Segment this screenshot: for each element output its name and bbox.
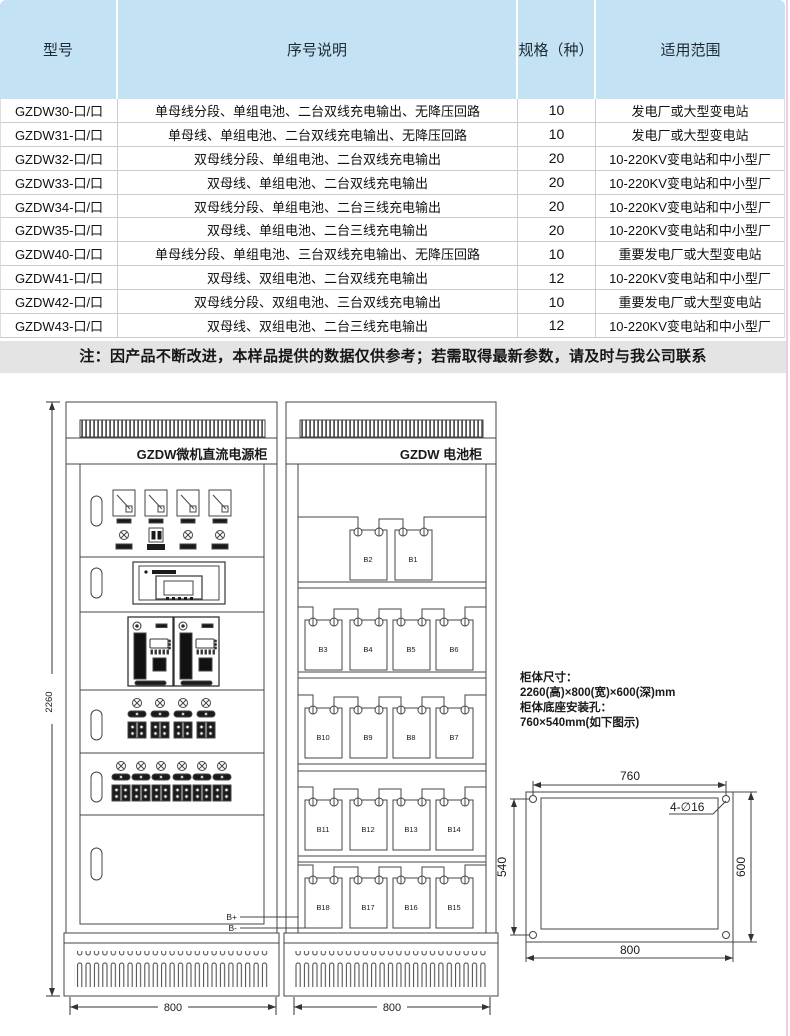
page-edge-line [786, 0, 788, 1036]
mount-holes-label: 4-∅16 [670, 800, 705, 814]
cell-range: 10-220KV变电站和中小型厂 [596, 147, 785, 171]
cell-spec: 12 [518, 314, 596, 338]
battery-cabinet-title: GZDW 电池柜 [400, 447, 482, 462]
bplus-label: B+ [226, 912, 237, 922]
cell-range: 10-220KV变电站和中小型厂 [596, 218, 785, 242]
charger-modules [128, 617, 219, 686]
model-spec-table: 型号 序号说明 规格（种） 适用范围 GZDW30-口/口 单母线分段、单组电池… [0, 0, 785, 338]
vent-grille [80, 420, 265, 437]
cell-spec: 10 [518, 123, 596, 147]
cell-description: 双母线、双组电池、二台三线充电输出 [118, 314, 518, 338]
cell-description: 双母线、单组电池、二台双线充电输出 [118, 171, 518, 195]
mount-dim-right: 600 [734, 857, 748, 877]
mounting-hole [723, 932, 730, 939]
cell-spec: 10 [518, 99, 596, 123]
specs-line-3: 柜体底座安装孔： [519, 700, 612, 714]
mounting-hole-diagram [510, 781, 757, 962]
battery-label: B16 [404, 903, 417, 912]
header-description: 序号说明 [118, 0, 518, 99]
disclaimer-note: 注：因产品不断改进，本样品提供的数据仅供参考；若需取得最新参数，请及时与我公司联… [0, 341, 786, 373]
power-cabinet [64, 402, 279, 996]
cell-model: GZDW32-口/口 [0, 147, 118, 171]
cell-spec: 20 [518, 218, 596, 242]
header-model: 型号 [0, 0, 118, 99]
table-body: GZDW30-口/口 单母线分段、单组电池、二台双线充电输出、无降压回路 10 … [0, 99, 785, 338]
mount-dim-left: 540 [495, 857, 509, 877]
cell-spec: 10 [518, 290, 596, 314]
battery-label: B7 [449, 733, 458, 742]
cell-spec: 20 [518, 195, 596, 219]
battery-label: B8 [406, 733, 415, 742]
battery-label: B3 [318, 645, 327, 654]
cell-spec: 12 [518, 266, 596, 290]
header-spec: 规格（种） [518, 0, 596, 99]
battery-label: B11 [317, 825, 330, 834]
vent-grille [300, 420, 483, 437]
battery-label: B18 [316, 903, 329, 912]
cell-description: 双母线分段、单组电池、二台双线充电输出 [118, 147, 518, 171]
cell-description: 单母线、单组电池、二台双线充电输出、无降压回路 [118, 123, 518, 147]
cell-model: GZDW33-口/口 [0, 171, 118, 195]
cell-model: GZDW34-口/口 [0, 195, 118, 219]
cell-range: 10-220KV变电站和中小型厂 [596, 266, 785, 290]
cell-description: 双母线、单组电池、二台三线充电输出 [118, 218, 518, 242]
height-dim-label: 2260 [44, 691, 55, 712]
mounting-hole [530, 932, 537, 939]
cell-description: 单母线分段、单组电池、二台双线充电输出、无降压回路 [118, 99, 518, 123]
battery-label: B6 [449, 645, 458, 654]
battery-label: B17 [361, 903, 374, 912]
specs-line-2: 2260(高)×800(宽)×600(深)mm [520, 685, 675, 699]
battery-label: B10 [316, 733, 329, 742]
cell-range: 10-220KV变电站和中小型厂 [596, 195, 785, 219]
cell-range: 发电厂或大型变电站 [596, 99, 785, 123]
table-header-row: 型号 序号说明 规格（种） 适用范围 [0, 0, 785, 99]
cell-model: GZDW35-口/口 [0, 218, 118, 242]
cell-range: 重要发电厂或大型变电站 [596, 290, 785, 314]
cell-spec: 20 [518, 147, 596, 171]
battery-label: B4 [363, 645, 372, 654]
cell-spec: 10 [518, 242, 596, 266]
battery-label: B5 [406, 645, 415, 654]
battery-label: B13 [404, 825, 417, 834]
cell-model: GZDW40-口/口 [0, 242, 118, 266]
battery-label: B1 [408, 555, 417, 564]
mounting-hole [530, 796, 537, 803]
catalog-page: 型号 序号说明 规格（种） 适用范围 GZDW30-口/口 单母线分段、单组电池… [0, 0, 790, 1036]
power-width-dim-label: 800 [164, 1002, 182, 1014]
cell-description: 单母线分段、单组电池、三台双线充电输出、无降压回路 [118, 242, 518, 266]
power-cabinet-title: GZDW微机直流电源柜 [137, 447, 268, 462]
cell-spec: 20 [518, 171, 596, 195]
cabinet-specs-text: 柜体尺寸： 2260(高)×800(宽)×600(深)mm 柜体底座安装孔： 7… [519, 670, 675, 729]
mount-dim-bottom: 800 [620, 943, 640, 957]
cell-description: 双母线分段、双组电池、三台双线充电输出 [118, 290, 518, 314]
cell-range: 发电厂或大型变电站 [596, 123, 785, 147]
cell-description: 双母线、双组电池、二台双线充电输出 [118, 266, 518, 290]
cell-model: GZDW31-口/口 [0, 123, 118, 147]
bminus-label: B- [229, 923, 238, 933]
cell-range: 10-220KV变电站和中小型厂 [596, 171, 785, 195]
battery-label: B15 [447, 903, 460, 912]
cell-model: GZDW41-口/口 [0, 266, 118, 290]
cabinet-outline-diagram: GZDW微机直流电源柜 [0, 386, 790, 1036]
specs-line-4: 760×540mm(如下图示) [520, 715, 639, 729]
battery-label: B12 [361, 825, 374, 834]
header-range: 适用范围 [596, 0, 785, 99]
cell-model: GZDW30-口/口 [0, 99, 118, 123]
battery-label: B14 [447, 825, 460, 834]
battery-label: B9 [363, 733, 372, 742]
base-vent [294, 951, 488, 987]
specs-line-1: 柜体尺寸： [519, 670, 578, 684]
base-vent [74, 951, 269, 987]
battery-label: B2 [363, 555, 372, 564]
cell-range: 重要发电厂或大型变电站 [596, 242, 785, 266]
cell-model: GZDW43-口/口 [0, 314, 118, 338]
cell-model: GZDW42-口/口 [0, 290, 118, 314]
battery-width-dim-label: 800 [383, 1002, 401, 1014]
cell-description: 双母线分段、单组电池、二台三线充电输出 [118, 195, 518, 219]
cell-range: 10-220KV变电站和中小型厂 [596, 314, 785, 338]
mount-dim-top: 760 [620, 769, 640, 783]
